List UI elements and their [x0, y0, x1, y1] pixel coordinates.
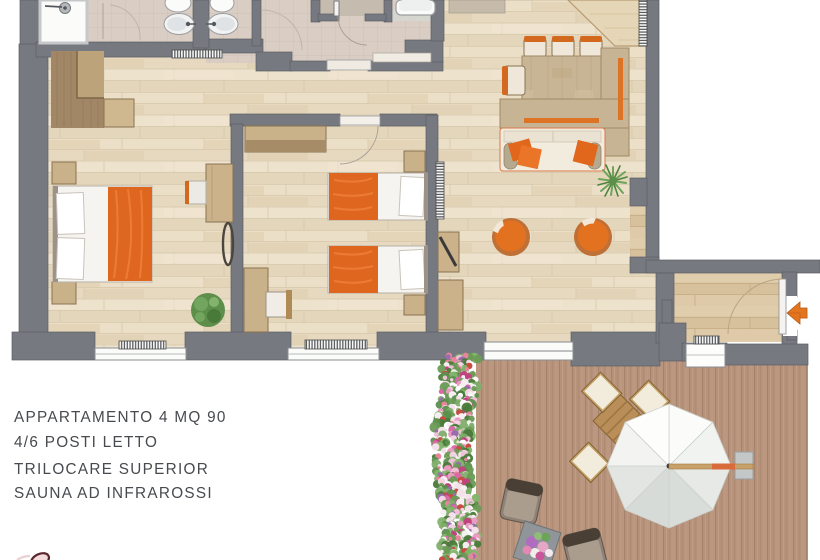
svg-text:4/6 POSTI LETTO: 4/6 POSTI LETTO — [14, 434, 158, 451]
svg-text:TRILOCARE SUPERIOR: TRILOCARE SUPERIOR — [14, 461, 209, 478]
svg-text:APPARTAMENTO 4 MQ 90: APPARTAMENTO 4 MQ 90 — [14, 409, 227, 426]
svg-text:SAUNA AD INFRAROSSI: SAUNA AD INFRAROSSI — [14, 485, 213, 502]
